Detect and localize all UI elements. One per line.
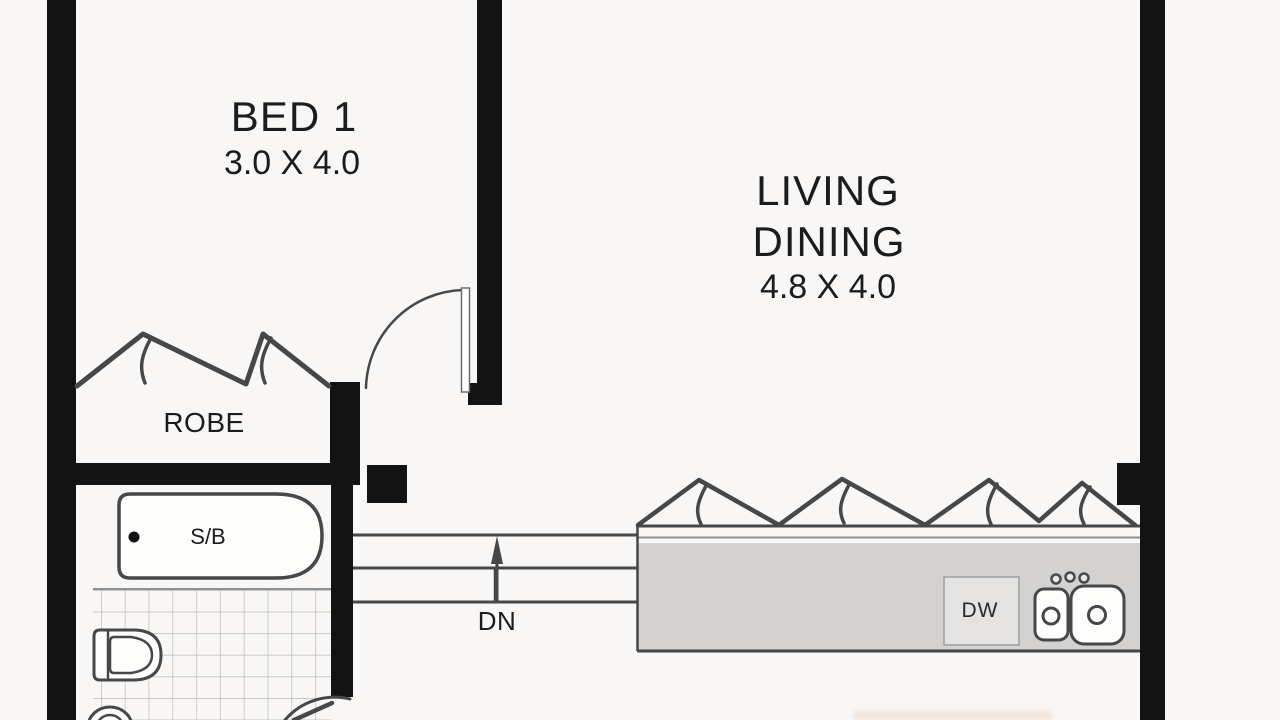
stairs-dn-label: DN bbox=[478, 608, 517, 634]
robe-rail bbox=[77, 334, 329, 386]
kitchen-bench bbox=[637, 479, 1140, 651]
bath-drain bbox=[129, 532, 140, 543]
kitchen-rail bbox=[638, 479, 1135, 525]
wall-left bbox=[47, 0, 76, 720]
bath-sb-label: S/B bbox=[190, 526, 225, 548]
wall-right bbox=[1140, 0, 1165, 720]
living-dimensions: 4.8 X 4.0 bbox=[760, 270, 896, 304]
wall-bed-east bbox=[477, 0, 502, 405]
sink-right bbox=[1071, 586, 1124, 644]
column bbox=[367, 465, 407, 503]
robe-label: ROBE bbox=[163, 409, 244, 437]
floor-plan-drawing bbox=[0, 0, 1280, 720]
wall-robe-stub bbox=[330, 382, 360, 463]
wall-robe-south bbox=[75, 463, 360, 485]
bedroom-door-swing-arc bbox=[366, 290, 463, 388]
dishwasher-dw-label: DW bbox=[962, 600, 999, 621]
wall-bed-east-foot bbox=[468, 383, 502, 405]
bedroom-door bbox=[366, 288, 470, 392]
bedroom-door-leaf bbox=[462, 288, 470, 392]
wall-bath-east bbox=[331, 485, 353, 697]
tap-dots bbox=[1052, 573, 1089, 584]
wall-right-stub bbox=[1117, 463, 1147, 505]
stairs bbox=[353, 535, 638, 602]
watermark-smudge bbox=[853, 711, 1053, 720]
dining-room-label: DINING bbox=[753, 221, 906, 263]
living-room-label: LIVING bbox=[756, 170, 900, 212]
sink-left bbox=[1035, 589, 1068, 640]
floor-plan: BED 1 3.0 X 4.0 LIVING DINING 4.8 X 4.0 … bbox=[0, 0, 1280, 720]
bed1-dimensions: 3.0 X 4.0 bbox=[224, 146, 360, 180]
toilet bbox=[94, 630, 161, 680]
bed1-room-label: BED 1 bbox=[231, 96, 357, 138]
